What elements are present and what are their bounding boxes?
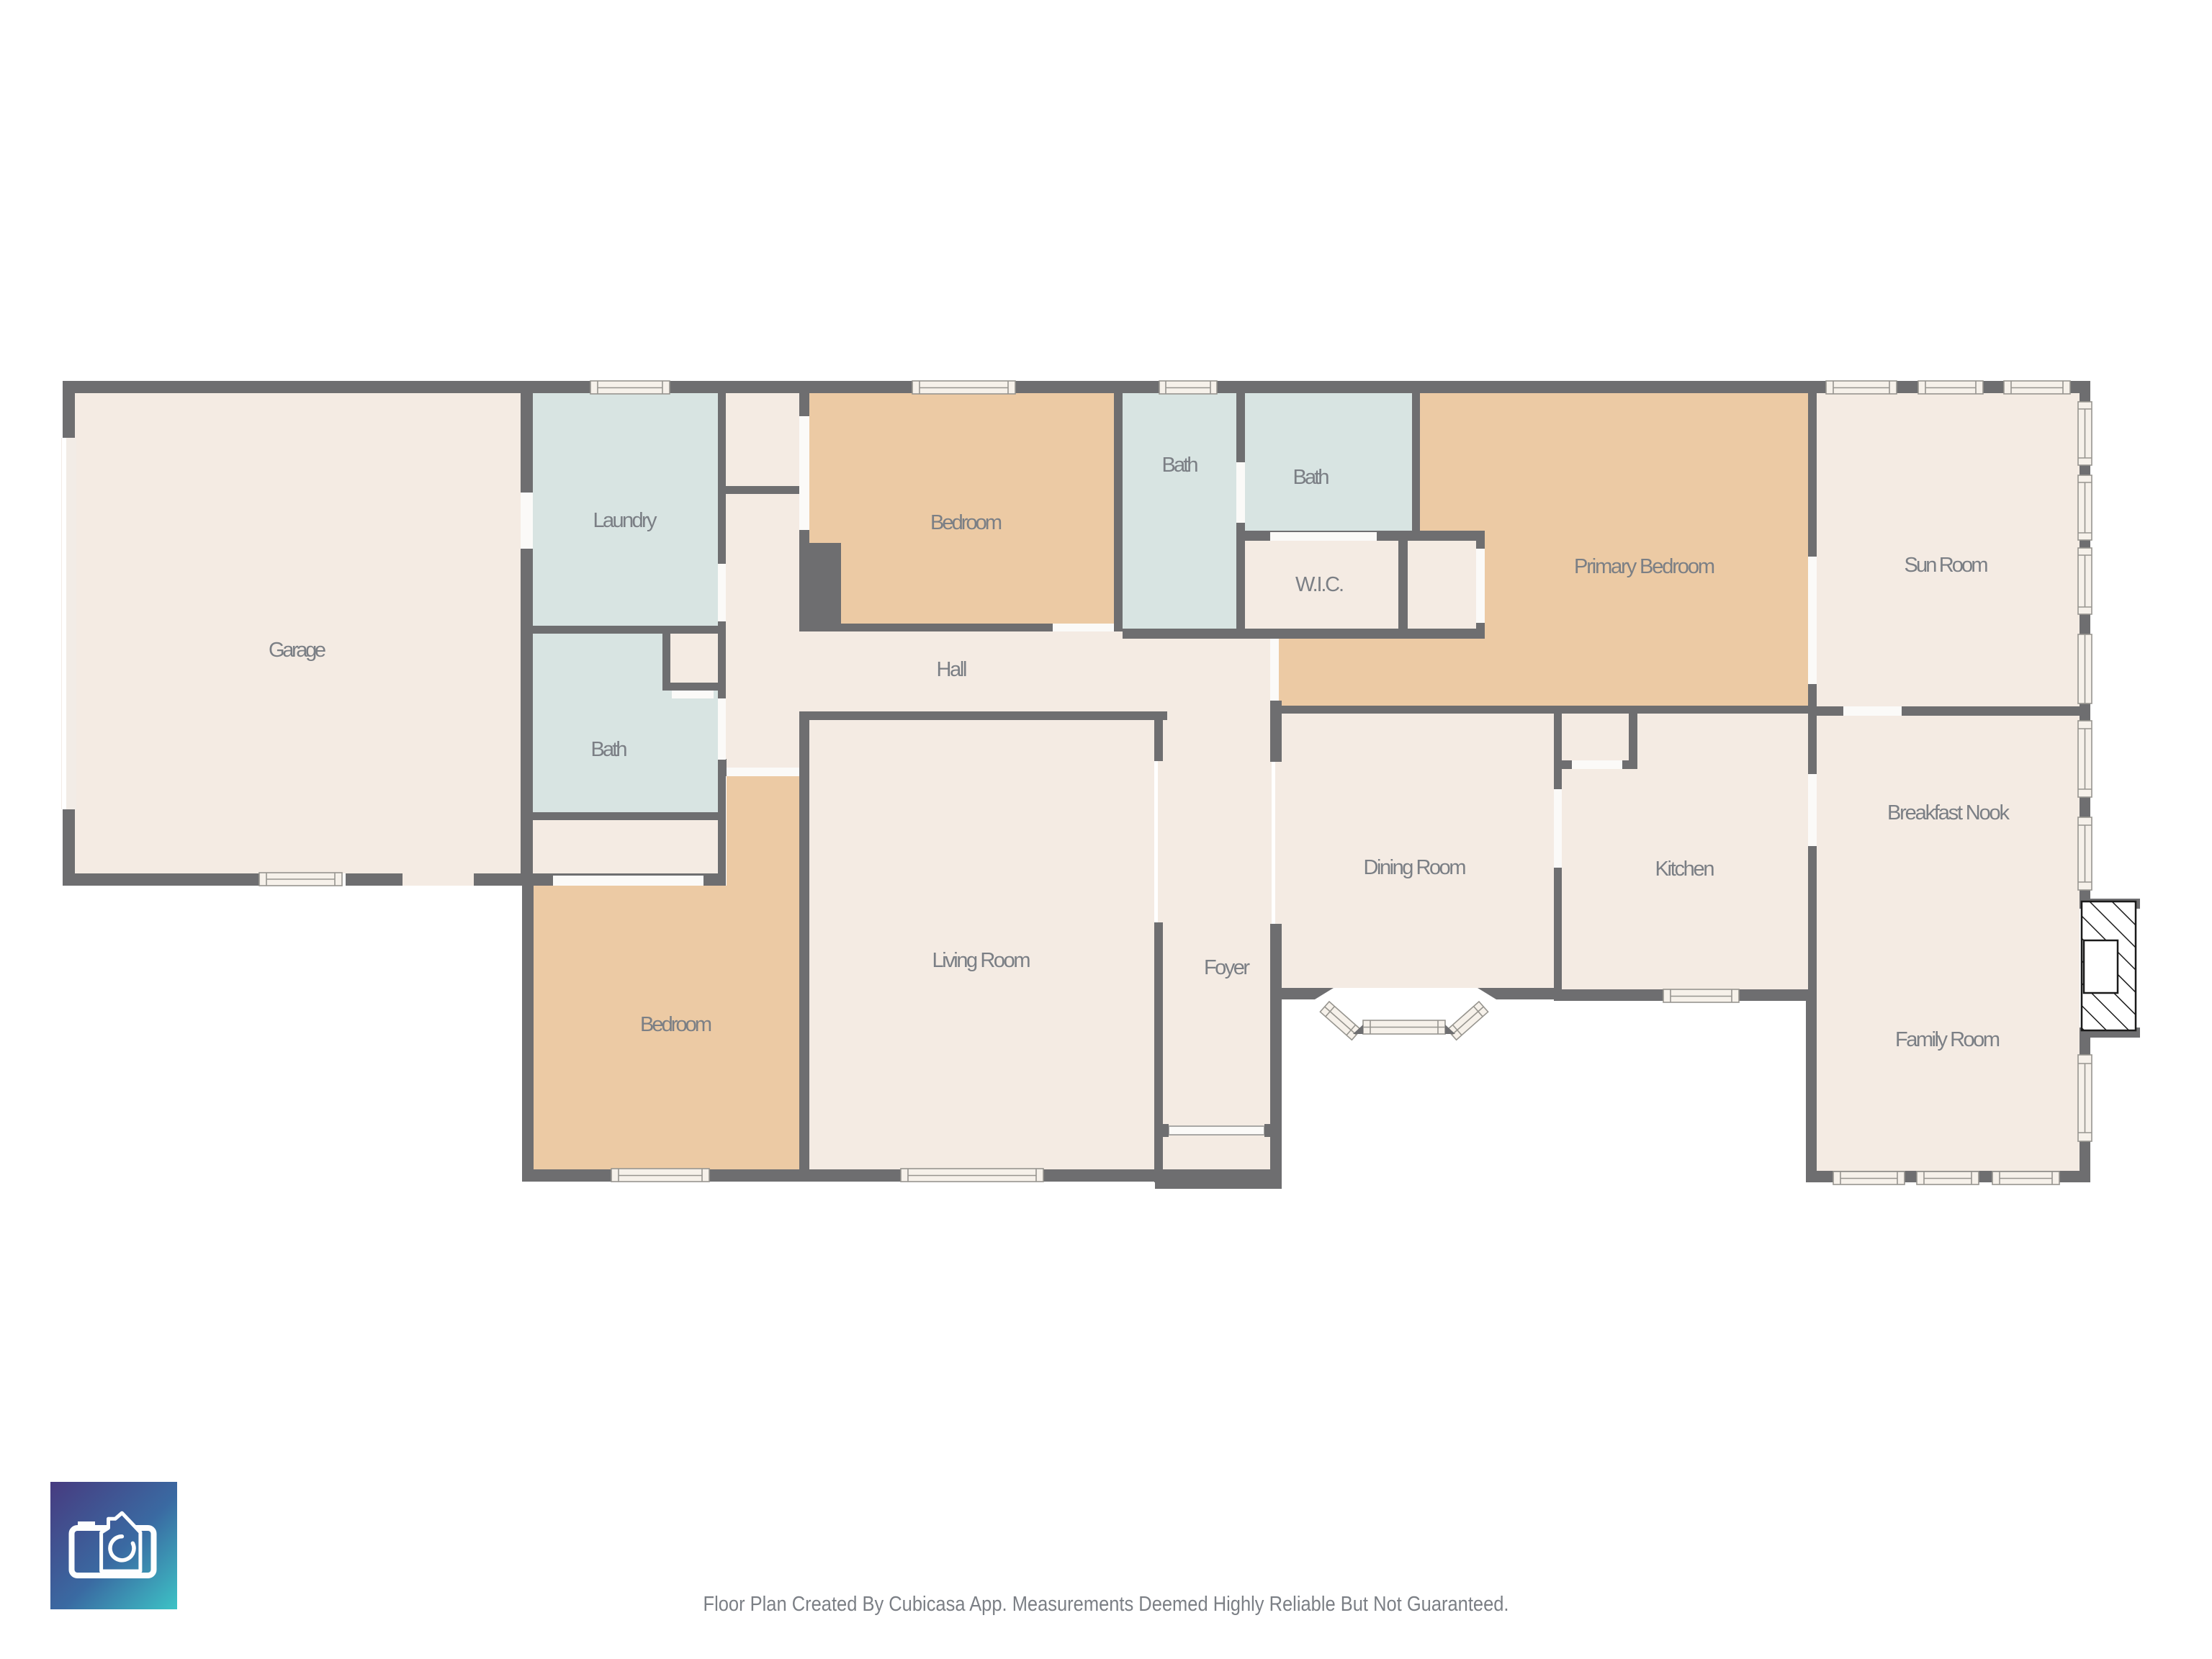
svg-text:Hall: Hall	[937, 658, 968, 681]
svg-text:Kitchen: Kitchen	[1655, 858, 1715, 881]
svg-text:Floor Plan Created By Cubicasa: Floor Plan Created By Cubicasa App. Meas…	[703, 1593, 1509, 1616]
svg-text:Bedroom: Bedroom	[930, 511, 1002, 534]
svg-text:Primary Bedroom: Primary Bedroom	[1574, 555, 1715, 578]
svg-text:Bath: Bath	[1293, 466, 1330, 489]
svg-text:W.I.C.: W.I.C.	[1295, 573, 1344, 596]
svg-text:Family Room: Family Room	[1895, 1028, 2000, 1051]
svg-text:Dining Room: Dining Room	[1364, 856, 1467, 879]
svg-text:Living Room: Living Room	[932, 949, 1031, 972]
svg-text:Bath: Bath	[1162, 454, 1199, 477]
svg-text:Garage: Garage	[269, 639, 326, 662]
svg-text:Breakfast Nook: Breakfast Nook	[1887, 801, 2010, 824]
svg-text:Foyer: Foyer	[1204, 956, 1250, 979]
svg-text:Bedroom: Bedroom	[640, 1013, 712, 1036]
svg-text:Bath: Bath	[591, 738, 628, 761]
svg-text:Sun Room: Sun Room	[1905, 554, 1989, 577]
svg-text:Laundry: Laundry	[593, 509, 658, 532]
